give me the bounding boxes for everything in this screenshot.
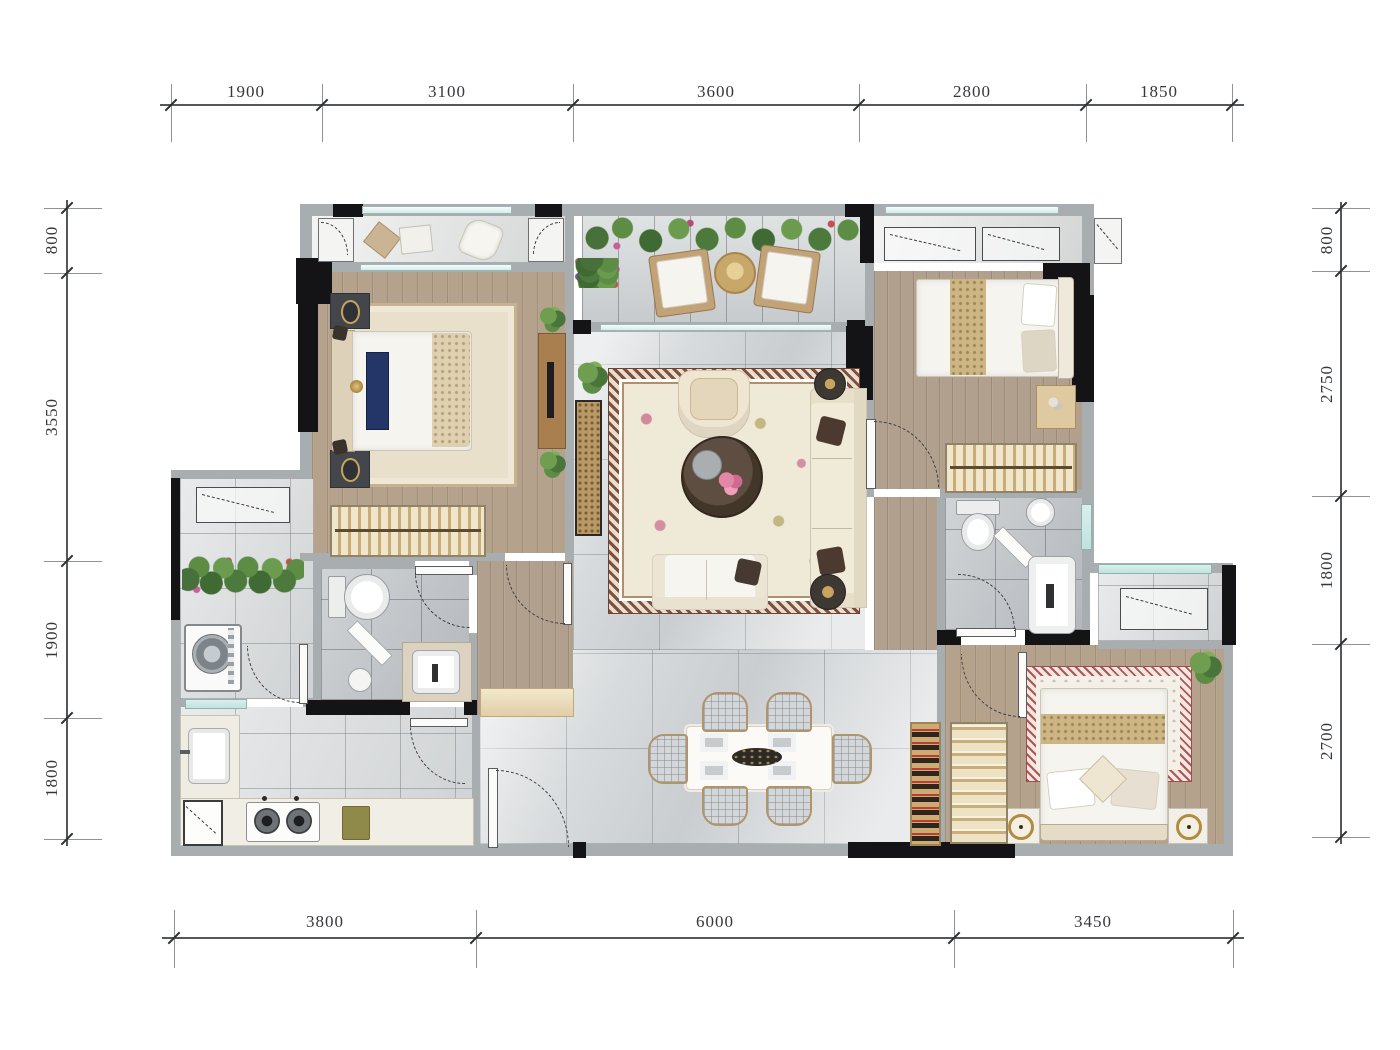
washer-panel [228,628,234,684]
wall-left-step [171,470,312,479]
window-symbol [1120,588,1208,630]
wall-bath1-left [313,561,321,707]
burner [254,808,280,834]
window-master-balcony [362,206,512,214]
window-balcony-divider [360,264,512,271]
side-table [810,574,846,610]
placemat [700,761,728,780]
bedroom2-bed-runner [950,279,986,375]
dim-right-1: 800 [1317,226,1337,255]
dim-line-bottom [162,937,1244,939]
window-laundry [185,699,247,709]
nightstand-flowers [1046,395,1064,413]
headboard-wing [332,325,349,342]
dim-right-3: 1800 [1317,551,1337,589]
sofa-pillow [816,546,846,576]
dim-witness [44,208,102,209]
kitchen-sink [188,728,230,784]
bedroom3-bed-band [1041,714,1165,744]
nightstand-lamp [1008,814,1034,840]
master-bed-runner [366,352,389,430]
toilet2-bowl [961,513,995,551]
dining-chair [832,734,872,784]
window-terrace-slider [600,324,832,331]
dim-witness [1232,84,1233,142]
lounge-cushion [761,251,813,305]
wall-bedroom3-top [1098,641,1224,649]
headboard-wing [332,439,349,456]
master-bed-blanket [432,333,470,447]
dining-chair [766,692,812,732]
dim-witness [171,84,172,142]
stove-knob [294,796,299,801]
dim-witness [44,839,102,840]
dim-left-4: 1800 [42,759,62,797]
cutting-board [342,806,370,840]
coffee-table-flowers [716,468,746,498]
floor-plan-canvas: 1900 3100 3600 2800 1850 3800 6000 3450 … [0,0,1400,1050]
tv [547,362,554,418]
shower-faucet [1046,584,1054,608]
toilet-bowl [344,574,390,620]
bath2-basin [1026,498,1055,527]
wine-rack [910,722,941,846]
dim-top-1: 1900 [227,82,265,102]
wall-bath1-bottom-b [464,700,477,715]
bedroom2-headboard [1058,277,1074,379]
dim-top-5: 1850 [1140,82,1178,102]
dining-chair [766,786,812,826]
wall-bath1-top-a [313,561,415,569]
terrace-table [714,252,756,294]
terrace-hedge [583,216,865,256]
dining-chair [702,692,748,732]
master-wardrobe [330,505,486,557]
loveseat-seat-line [706,560,707,600]
dim-witness [322,84,323,142]
dim-right-4: 2700 [1317,722,1337,760]
dim-bottom-1: 3800 [306,912,344,932]
nightstand-decor [341,458,360,482]
column [535,204,562,217]
nightstand-decor [341,300,360,324]
dim-line-left [66,200,68,846]
wall-bath1-bottom-a [306,700,410,715]
column [573,320,591,334]
armchair-cushion [690,378,738,420]
kitchen-counter-bottom [180,798,474,846]
side-table [814,368,846,400]
stove-knob [262,796,267,801]
lounge-cushion [656,255,708,309]
dining-centerpiece [732,748,782,766]
bath-stool [348,668,372,692]
bed-ornament [350,380,363,393]
kitchen-faucet [180,750,190,754]
dim-bottom-3: 3450 [1074,912,1112,932]
dim-witness [44,561,102,562]
wall-master-bottom-b [565,553,574,561]
burner [286,808,312,834]
washer-drum [192,634,232,674]
window-right-bay [1098,564,1212,574]
loveseat-pillow [734,558,762,586]
laundry-plants [182,552,304,602]
balcony-cushion [399,224,434,254]
living-console [575,400,602,536]
plant [1190,650,1222,684]
terrace-hedge-side [562,258,628,288]
dim-left-2: 3550 [42,398,62,436]
hall-right-floor [874,497,937,650]
dining-chair [648,734,688,784]
dim-witness [573,84,574,142]
dim-top-2: 3100 [428,82,466,102]
plant [540,450,566,478]
hall-cabinet [480,688,574,717]
dim-witness [44,718,102,719]
wall-bath2-left [937,497,945,637]
bedroom3-headboard [1040,824,1168,841]
dim-top-4: 2800 [953,82,991,102]
dim-line-right [1340,202,1342,844]
laundry-door-leaf [299,644,308,704]
dim-top-3: 3600 [697,82,735,102]
dim-bottom-2: 6000 [696,912,734,932]
nightstand-lamp [1176,814,1202,840]
dim-left-1: 800 [42,226,62,255]
dim-witness [859,84,860,142]
column [298,300,318,432]
dim-right-2: 2750 [1317,365,1337,403]
sofa-seat-line [812,458,852,459]
bedroom2-pillow [1021,283,1058,327]
dim-witness [1086,84,1087,142]
threshold [573,842,586,858]
window-bedroom2-bay [885,206,1059,214]
sofa-seat-line [812,528,852,529]
plant [578,360,608,394]
dim-witness [44,273,102,274]
column [333,204,363,217]
dining-chair [702,786,748,826]
column [1222,565,1236,645]
column [296,258,332,304]
column [847,320,865,334]
bedroom3-wardrobe [950,722,1008,844]
dim-left-3: 1900 [42,621,62,659]
column [171,478,180,620]
bedroom2-pillow [1021,329,1057,373]
placemat [700,733,728,752]
bedroom2-wardrobe [945,443,1077,493]
plant [540,306,566,332]
vanity-faucet [432,664,438,682]
window-bath2 [1081,504,1092,550]
